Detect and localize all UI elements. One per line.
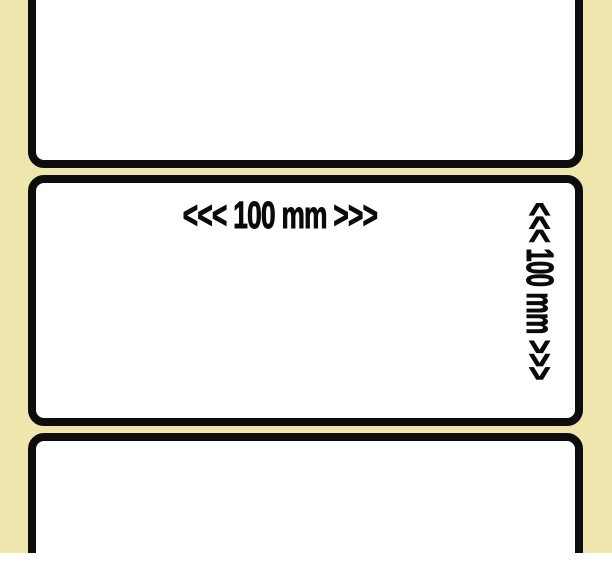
dimension-label: <<< 100 mm >>> <<< 100 mm >>> xyxy=(28,175,583,426)
product-illustration: <<< 100 mm >>> <<< 100 mm >>> xyxy=(0,0,612,563)
blank-label-bottom xyxy=(28,433,583,553)
width-dimension-text: <<< 100 mm >>> xyxy=(183,197,377,235)
label-liner-strip: <<< 100 mm >>> <<< 100 mm >>> xyxy=(0,0,612,553)
height-dimension-text: <<< 100 mm >>> xyxy=(520,202,558,380)
blank-label-top xyxy=(28,0,583,168)
